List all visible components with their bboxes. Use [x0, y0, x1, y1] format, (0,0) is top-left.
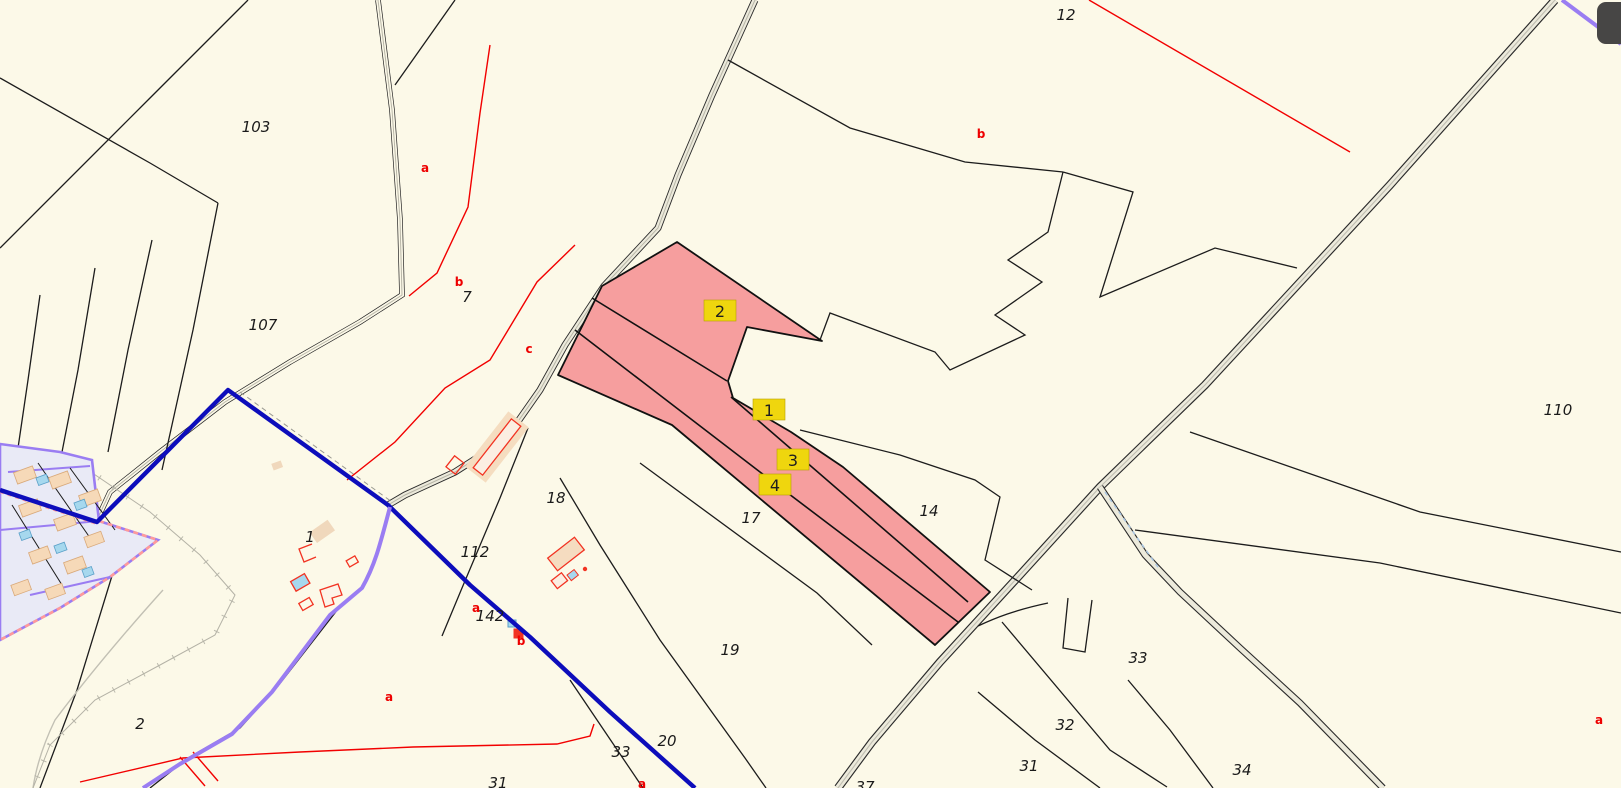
- selection-marker-1[interactable]: 1: [753, 399, 785, 420]
- parcel-label-31: 31: [1019, 757, 1038, 775]
- selection-marker-2[interactable]: 2: [704, 300, 736, 321]
- selection-marker-number: 1: [764, 401, 774, 420]
- soil-class-label-a: a: [421, 161, 429, 175]
- parcel-label-32: 32: [1055, 716, 1074, 734]
- parcel-label-18: 18: [546, 489, 565, 507]
- soil-class-label-c: c: [525, 342, 532, 356]
- selection-marker-number: 4: [770, 476, 780, 495]
- parcel-label-34: 34: [1232, 761, 1251, 779]
- parcel-label-103: 103: [242, 118, 271, 136]
- selection-marker-4[interactable]: 4: [759, 474, 791, 495]
- parcel-label-1: 1: [305, 528, 315, 546]
- soil-class-label-a: a: [638, 777, 646, 788]
- soil-class-label-a: a: [1595, 713, 1603, 727]
- parcel-label-37: 37: [855, 778, 875, 788]
- parcel-label-33: 33: [1128, 649, 1147, 667]
- soil-class-label-b: b: [455, 275, 464, 289]
- parcel-label-19: 19: [720, 641, 739, 659]
- soil-class-label-a: a: [385, 690, 393, 704]
- selection-marker-number: 3: [788, 451, 798, 470]
- parcel-label-17: 17: [741, 509, 761, 527]
- soil-class-label-b: b: [977, 127, 986, 141]
- soil-class-label-a: a: [472, 601, 480, 615]
- map-tool-button[interactable]: [1597, 2, 1621, 44]
- parcel-label-2: 2: [135, 715, 145, 733]
- parcel-label-112: 112: [461, 543, 490, 561]
- parcel-label-20: 20: [657, 732, 676, 750]
- map-stage: 1031077121101418171112142192332031373332…: [0, 0, 1621, 788]
- map-canvas[interactable]: 1031077121101418171112142192332031373332…: [0, 0, 1621, 788]
- parcel-label-110: 110: [1544, 401, 1573, 419]
- parcel-label-31: 31: [488, 774, 507, 788]
- selection-marker-number: 2: [715, 302, 725, 321]
- parcel-label-33: 33: [611, 743, 630, 761]
- parcel-label-14: 14: [919, 502, 938, 520]
- parcel-label-12: 12: [1056, 6, 1075, 24]
- soil-class-label-b: b: [517, 634, 526, 648]
- selection-marker-3[interactable]: 3: [777, 449, 809, 470]
- parcel-label-7: 7: [462, 288, 472, 306]
- parcel-label-107: 107: [249, 316, 278, 334]
